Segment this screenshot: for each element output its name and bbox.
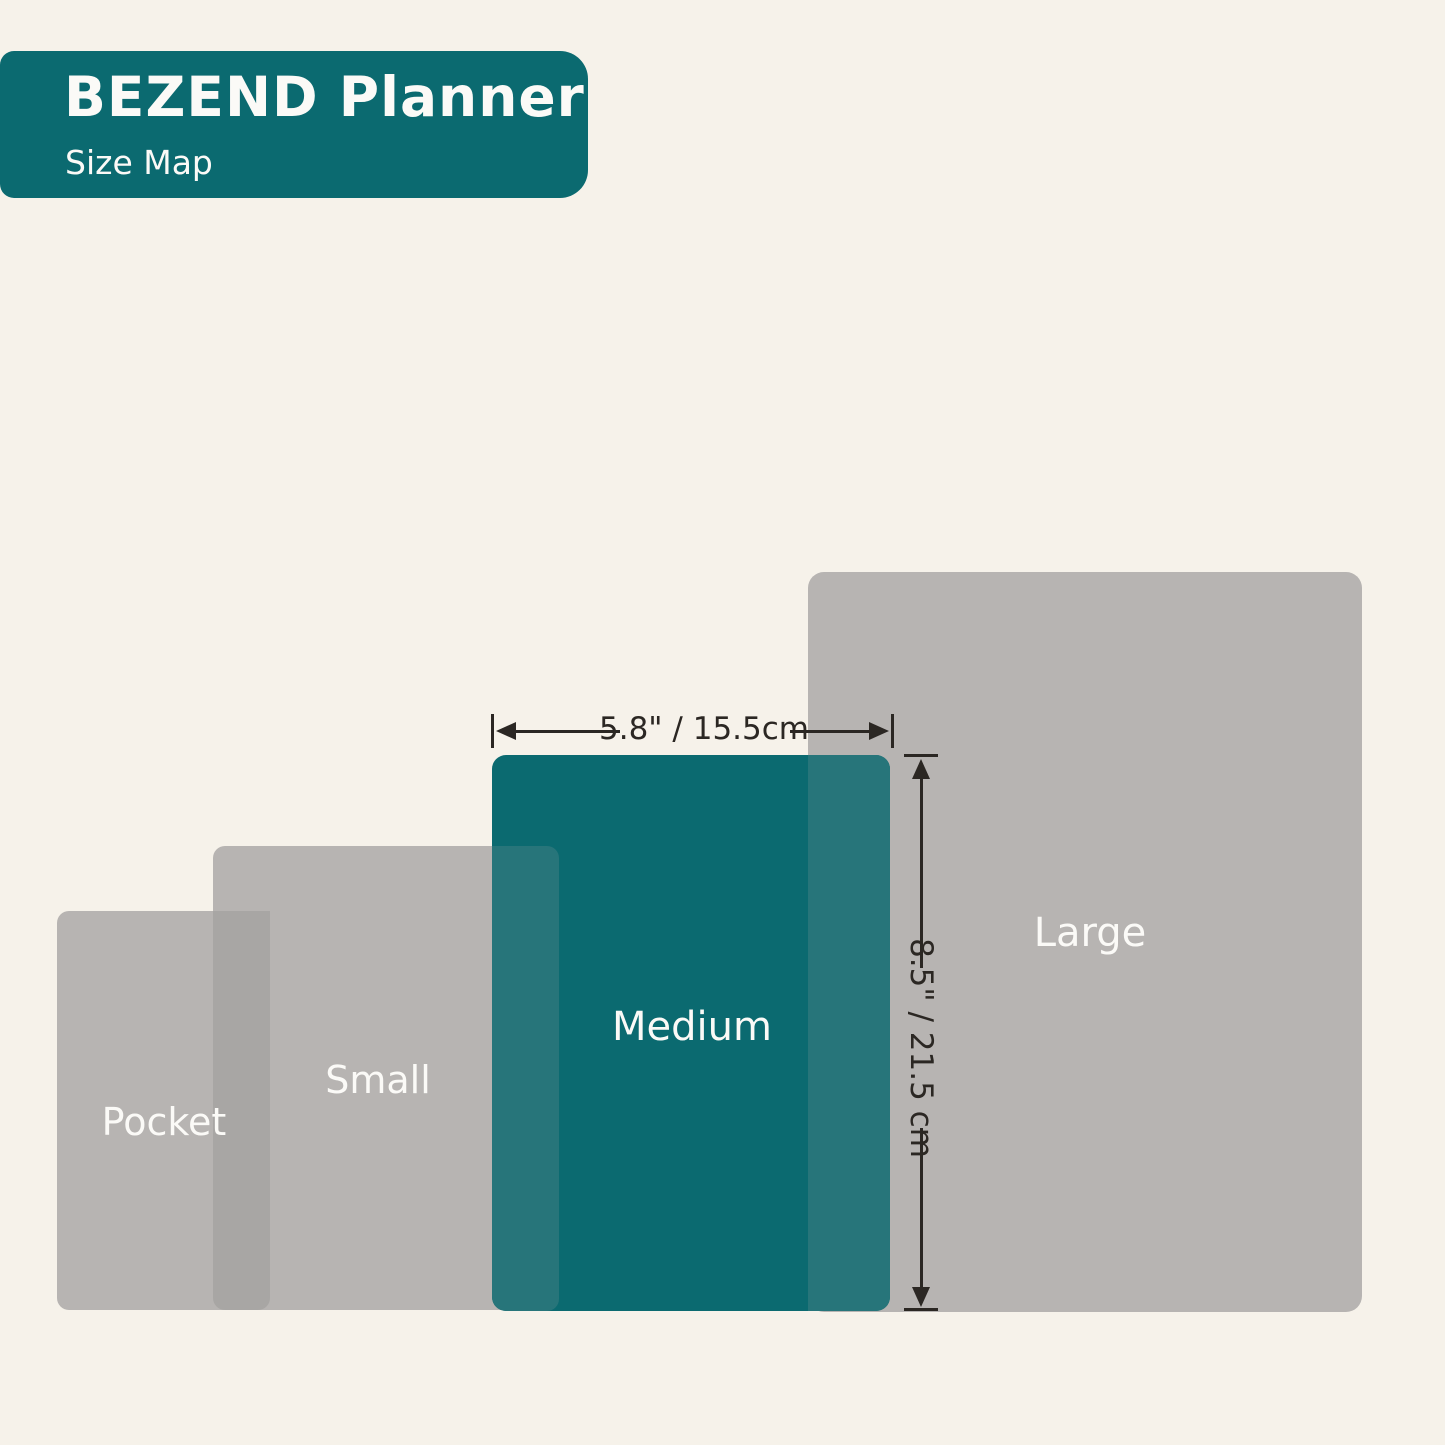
height-dim-top-tick [904,754,938,757]
size-map-infographic: BEZEND Planner Size Map Pocket Small Med… [0,0,1445,1445]
arrow-left-icon [496,722,516,740]
arrow-down-icon [912,1287,930,1307]
page-subtitle: Size Map [65,143,213,182]
overlap-small-medium [492,846,559,1311]
header-badge: BEZEND Planner Size Map [0,51,588,198]
pocket-label: Pocket [102,1100,227,1144]
medium-label: Medium [612,1004,772,1050]
height-dim-label: 8.5" / 21.5 cm [903,938,939,1158]
large-label: Large [1034,910,1147,956]
width-dim-line-right [790,730,870,733]
arrow-right-icon [869,722,889,740]
width-dim-label: 5.8" / 15.5cm [599,711,809,747]
overlap-medium-large [808,755,890,1311]
brand-title: BEZEND Planner [64,65,585,129]
width-dim-left-tick [491,714,494,748]
height-dim-bottom-tick [904,1308,938,1311]
height-dim-line-bottom [920,1128,923,1288]
arrow-up-icon [912,759,930,779]
width-dim-right-tick [891,714,894,748]
small-label: Small [325,1058,431,1102]
